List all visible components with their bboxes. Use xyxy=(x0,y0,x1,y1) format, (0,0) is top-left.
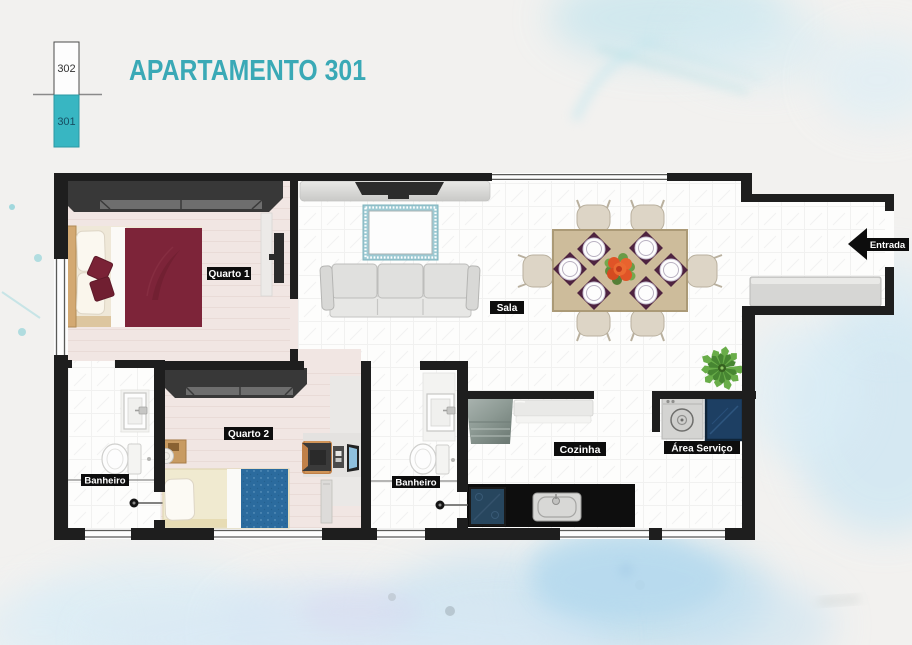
svg-text:302: 302 xyxy=(57,63,75,75)
svg-text:Quarto 2: Quarto 2 xyxy=(228,429,270,440)
svg-text:Banheiro: Banheiro xyxy=(84,476,125,487)
svg-text:Banheiro: Banheiro xyxy=(395,478,436,489)
svg-text:Quarto 1: Quarto 1 xyxy=(208,269,250,280)
svg-text:Área Serviço: Área Serviço xyxy=(671,442,732,455)
svg-text:APARTAMENTO 301: APARTAMENTO 301 xyxy=(129,55,366,87)
svg-text:Entrada: Entrada xyxy=(870,240,906,251)
svg-text:Sala: Sala xyxy=(497,303,518,314)
svg-text:Cozinha: Cozinha xyxy=(560,444,601,456)
svg-text:301: 301 xyxy=(57,116,75,128)
